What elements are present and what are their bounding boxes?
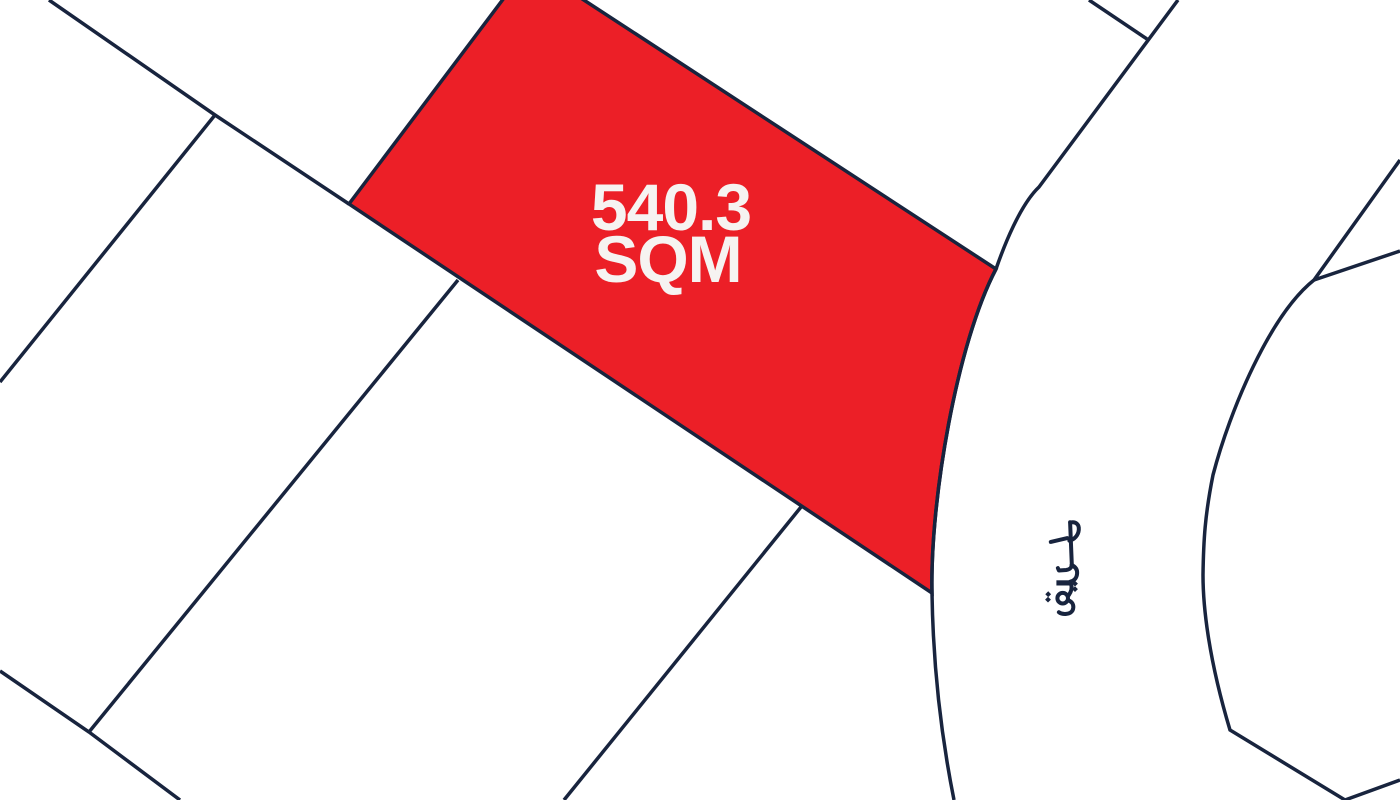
svg-text:SQM: SQM [594, 222, 741, 296]
